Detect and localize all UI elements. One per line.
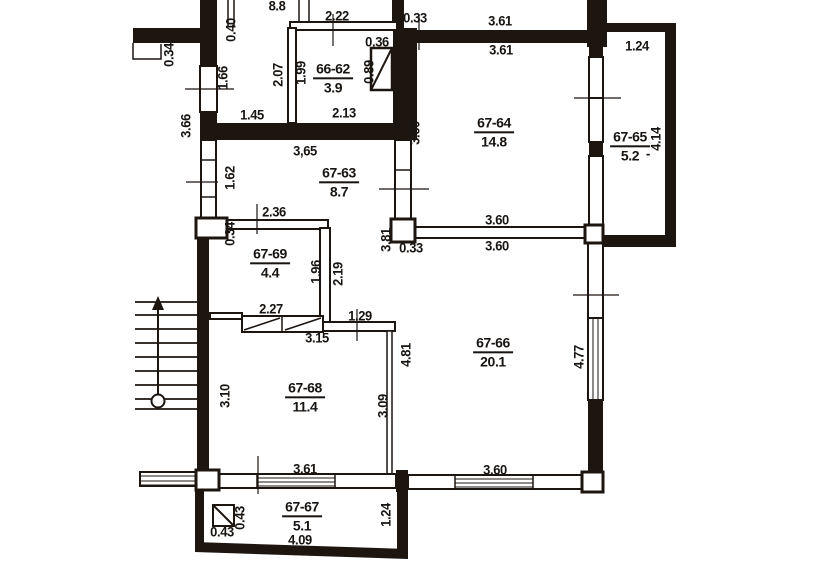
dim-label: 1.24 bbox=[625, 39, 649, 53]
dim-label: 3.61 bbox=[293, 462, 317, 476]
room-label-67-68: 67-68 11.4 bbox=[285, 380, 325, 413]
dim-label: 1.66 bbox=[216, 66, 230, 90]
dim-label: 2.27 bbox=[259, 302, 283, 316]
dim-label: 3.09 bbox=[376, 394, 390, 418]
dim-label: 2.22 bbox=[325, 9, 349, 23]
walls-windows-doors bbox=[140, 22, 603, 526]
neighbor-wall-step bbox=[133, 43, 161, 59]
room-number: 67-66 bbox=[473, 335, 513, 353]
dim-label: 1.29 bbox=[348, 309, 372, 323]
room-area: 3.9 bbox=[313, 79, 353, 95]
stair-start-circle bbox=[152, 395, 165, 408]
room-area: 20.1 bbox=[473, 353, 513, 369]
dim-label: 1.45 bbox=[240, 108, 264, 122]
dim-label: 0.36 bbox=[365, 35, 389, 49]
dim-label: 3.60 bbox=[408, 121, 422, 145]
dim-label: 1.99 bbox=[294, 61, 308, 85]
dim-label: 0.33 bbox=[403, 11, 427, 25]
dim-label: 3,65 bbox=[293, 144, 317, 158]
stairs bbox=[135, 296, 197, 409]
stair-arrow-head bbox=[152, 296, 164, 310]
dim-label: 3.66 bbox=[179, 114, 193, 138]
room-label-67-67: 67-67 5.1 bbox=[282, 499, 322, 532]
floor-plan: 8.8 2.22 0.33 3.61 3.61 1.24 0.36 1.45 2… bbox=[0, 0, 819, 570]
dim-label: 3.10 bbox=[218, 384, 232, 408]
dim-label: 0.43 bbox=[210, 525, 234, 539]
dim-label: 8.8 bbox=[269, 0, 286, 13]
dim-label: 0.43 bbox=[233, 506, 247, 530]
dim-label: 3.60 bbox=[483, 463, 507, 477]
dim-label: 0.40 bbox=[224, 18, 238, 42]
stair-treads bbox=[135, 302, 197, 409]
dim-label: 4.09 bbox=[288, 533, 312, 547]
room-number: 67-68 bbox=[285, 380, 325, 398]
room-number: 67-63 bbox=[319, 165, 359, 183]
dim-label: 3.60 bbox=[485, 239, 509, 253]
dim-label: 3.15 bbox=[305, 331, 329, 345]
room-label-67-66: 67-66 20.1 bbox=[473, 335, 513, 368]
dim-label: 4.81 bbox=[399, 343, 413, 367]
room-number: 66-62 bbox=[313, 61, 353, 79]
room-label-67-69: 67-69 4.4 bbox=[250, 246, 290, 279]
dim-label: 2.36 bbox=[262, 205, 286, 219]
room-number: 67-65 bbox=[610, 129, 650, 147]
room-area: 8.7 bbox=[319, 183, 359, 199]
dim-label: 3.61 bbox=[488, 14, 512, 28]
room-area: 5.1 bbox=[282, 517, 322, 533]
dim-label: 1.96 bbox=[309, 260, 323, 284]
room-area: 14.8 bbox=[474, 133, 514, 149]
floorplan-drawing bbox=[0, 0, 819, 570]
room-label-67-63: 67-63 8.7 bbox=[319, 165, 359, 198]
room-label-66-62: 66-62 3.9 bbox=[313, 61, 353, 94]
dim-label: 0.89 bbox=[362, 60, 376, 84]
dim-label: 4.14 bbox=[649, 127, 663, 151]
dim-label: 0.33 bbox=[399, 241, 423, 255]
room-area: 5.2 bbox=[610, 147, 650, 163]
room-number: 67-67 bbox=[282, 499, 322, 517]
dim-label: 1.62 bbox=[223, 166, 237, 190]
dim-label: 2.19 bbox=[331, 262, 345, 286]
room-number: 67-69 bbox=[250, 246, 290, 264]
dim-label: 1.24 bbox=[379, 503, 393, 527]
dim-label: 3.61 bbox=[489, 43, 513, 57]
dim-label: 3.60 bbox=[485, 213, 509, 227]
dim-label: 3.81 bbox=[379, 228, 393, 252]
dim-label: 0.34 bbox=[223, 222, 237, 246]
room-label-67-65: 67-65 5.2 bbox=[610, 129, 650, 162]
dim-label: 2.13 bbox=[332, 106, 356, 120]
room-area: 4.4 bbox=[250, 264, 290, 280]
room-number: 67-64 bbox=[474, 115, 514, 133]
dim-label: 4.77 bbox=[572, 345, 586, 369]
dim-label: 2.07 bbox=[271, 63, 285, 87]
room-area: 11.4 bbox=[285, 398, 325, 414]
dim-label: 0.34 bbox=[162, 43, 176, 67]
room-label-67-64: 67-64 14.8 bbox=[474, 115, 514, 148]
